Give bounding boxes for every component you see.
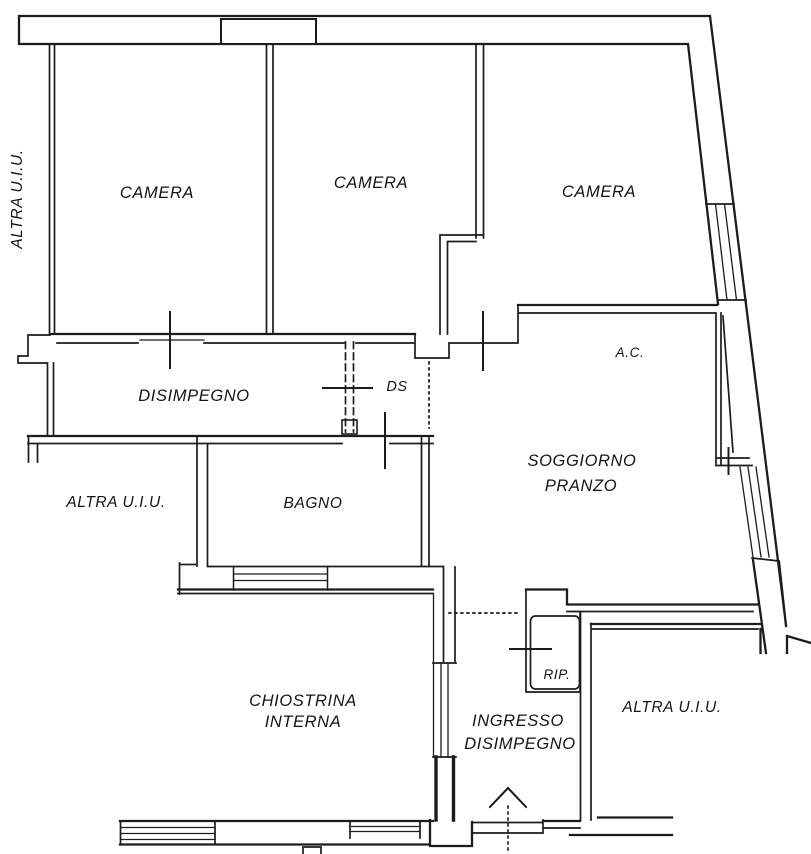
room-label-altra-uiu-bottom-right: ALTRA U.I.U. [621,699,721,716]
room-label-chiostrina-line1: CHIOSTRINA [249,692,357,710]
entrance-arrow-icon [490,788,526,854]
door-leaf-marks [170,312,729,649]
sliding-door-pocket [342,420,357,434]
room-label-camera-1: CAMERA [120,184,194,202]
top-window-box [221,19,316,44]
entrance-arrow-head [490,788,526,807]
room-label-chiostrina-line2: INTERNA [265,713,342,731]
bottom-wall-bump [303,847,321,854]
floor-plan-sheet: CAMERA CAMERA CAMERA ALTRA U.I.U. DISIMP… [0,0,811,854]
thick-wall-band [436,757,454,820]
interior-walls [18,31,779,845]
floor-plan: CAMERA CAMERA CAMERA ALTRA U.I.U. DISIMP… [0,0,811,854]
room-label-ingresso-line1: INGRESSO [472,712,564,730]
walls [18,16,811,854]
room-label-camera-2: CAMERA [334,174,408,192]
door-marks [170,312,729,649]
room-label-ingresso-line2: DISIMPEGNO [464,735,575,753]
room-label-camera-3: CAMERA [562,183,636,201]
room-label-rip: RIP. [544,667,571,682]
room-label-disimpegno: DISIMPEGNO [138,387,249,405]
bagno-window [234,567,328,591]
room-label-soggiorno-line1: SOGGIORNO [528,452,637,470]
room-label-soggiorno-line2: PRANZO [545,477,617,495]
room-label-ac: A.C. [615,345,645,360]
room-label-altra-uiu-left: ALTRA U.I.U. [9,149,26,249]
room-label-altra-uiu-mid: ALTRA U.I.U. [65,494,165,511]
room-labels: CAMERA CAMERA CAMERA ALTRA U.I.U. DISIMP… [9,149,722,753]
outer-walls [19,16,811,846]
room-label-ds: DS [386,379,407,395]
light-lines [121,30,770,840]
room-label-bagno: BAGNO [284,495,343,512]
